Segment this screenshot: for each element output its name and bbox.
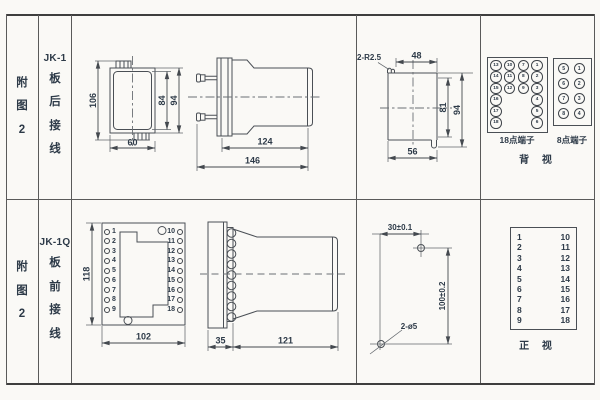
terminal-number: 17 <box>561 305 570 315</box>
label-18-point: 18点端子 <box>484 134 550 146</box>
wiring-label-char: 板 <box>49 74 61 86</box>
dim-106: 106 <box>88 93 98 108</box>
terminal-circle: 11 <box>504 71 516 83</box>
terminal-number: 7 <box>517 294 522 304</box>
drawing-rear-view: 106 84 94 60 <box>88 56 183 152</box>
terminal-item: 7 <box>104 286 126 294</box>
terminal-number: 1 <box>110 228 118 235</box>
model-cell-top: JK-1 板后接线 <box>39 15 71 199</box>
dim-121: 121 <box>278 336 293 346</box>
dim-60: 60 <box>127 138 137 148</box>
terminal-item: 11 <box>160 237 183 245</box>
terminal-number: 18 <box>165 306 177 313</box>
terminal-circle: 4 <box>574 108 585 119</box>
wiring-label-char: 板 <box>49 258 61 270</box>
terminal-dot <box>177 277 183 283</box>
terminal-number: 8 <box>517 305 522 315</box>
terminal-circle: 7 <box>518 60 530 72</box>
model-name: JK-1 <box>44 53 67 64</box>
terminal-circle: 1 <box>574 63 585 74</box>
terminal-circle: 16 <box>490 94 502 106</box>
terminal-number: 11 <box>166 238 177 245</box>
terminal-number: 1 <box>517 232 522 242</box>
terminal-item: 12 <box>160 247 183 255</box>
figure-page: 附图2 JK-1 板后接线 附图2 JK-1Q 板前接线 <box>0 0 600 400</box>
terminal-circle: 12 <box>504 83 516 95</box>
terminal-number: 10 <box>165 228 177 235</box>
terminal-number: 11 <box>561 242 570 252</box>
terminal-dot <box>177 248 183 254</box>
terminal-dot <box>177 307 183 313</box>
terminal-list-right-column: 101112131415161718 <box>561 232 570 325</box>
terminal-circle: 7 <box>558 93 569 104</box>
terminal-number: 9 <box>110 306 118 313</box>
figure-label-char: 附 <box>16 78 28 90</box>
terminal-dot <box>177 287 183 293</box>
model-cell-bottom: JK-1Q 板前接线 <box>39 200 71 383</box>
terminal-number: 8 <box>110 296 118 303</box>
terminal-circle: 3 <box>574 93 585 104</box>
wiring-label-char: 接 <box>49 305 61 317</box>
terminal-number: 15 <box>561 284 570 294</box>
terminal-item: 8 <box>104 296 126 304</box>
terminal-circle: 3 <box>531 83 543 95</box>
figure-label-char: 2 <box>19 309 25 321</box>
terminal-circle: 5 <box>558 63 569 74</box>
dim-100: 100±0.2 <box>438 281 447 310</box>
terminal-item: 2 <box>104 237 126 245</box>
terminal-number: 5 <box>110 267 118 274</box>
drawing-panel-cutout: 48 2-R2.5 81 94 56 <box>357 51 473 163</box>
hole-note: 2-ø5 <box>401 322 418 331</box>
terminal-number: 5 <box>517 274 522 284</box>
terminal-number: 12 <box>561 253 570 263</box>
dim-56: 56 <box>407 147 417 157</box>
terminal-circle: 15 <box>490 83 502 95</box>
terminal-item: 4 <box>104 257 126 265</box>
terminal-circle: 2 <box>574 78 585 89</box>
terminal-grid-8: 51627384 <box>556 61 587 121</box>
model-name: JK-1Q <box>40 237 71 248</box>
terminal-number: 18 <box>561 315 570 325</box>
wiring-label-top: 板后接线 <box>49 68 61 162</box>
terminal-number: 3 <box>110 248 118 255</box>
terminal-item: 14 <box>160 267 183 275</box>
drawing-side-view-front: 35 121 <box>200 222 346 351</box>
terminal-item: 3 <box>104 247 126 255</box>
terminal-number: 3 <box>517 253 522 263</box>
terminal-item: 16 <box>160 286 183 294</box>
terminal-list-left-column: 123456789 <box>517 232 522 325</box>
wiring-label-char: 线 <box>49 329 61 341</box>
figure-label-top: 附图2 <box>6 15 38 199</box>
grid-line-top <box>6 14 595 16</box>
wiring-label-char: 后 <box>49 97 61 109</box>
radius-note: 2-R2.5 <box>357 53 382 62</box>
terminal-number: 16 <box>165 287 177 294</box>
terminal-dot <box>177 258 183 264</box>
figure-label-char: 图 <box>16 286 28 298</box>
terminal-list-front: 123456789 101112131415161718 <box>510 227 577 330</box>
terminal-circle: 17 <box>490 106 502 118</box>
terminal-item: 18 <box>160 306 183 314</box>
terminal-number: 2 <box>110 238 118 245</box>
terminal-dot <box>177 297 183 303</box>
terminal-circle: 9 <box>518 83 530 95</box>
front-view-left-terminals: 1 2 3 4 5 6 7 8 9 <box>104 228 126 314</box>
terminal-item: 13 <box>160 257 183 265</box>
grid-line-bottom <box>6 383 595 385</box>
terminal-circle: 18 <box>490 117 502 129</box>
terminal-circle: 8 <box>558 108 569 119</box>
terminal-number: 17 <box>165 296 177 303</box>
terminal-item: 1 <box>104 228 126 236</box>
wiring-label-bottom: 板前接线 <box>49 252 61 346</box>
terminal-number: 12 <box>165 248 177 255</box>
terminal-number: 16 <box>561 294 570 304</box>
terminal-item: 10 <box>160 228 183 236</box>
terminal-number: 7 <box>110 287 118 294</box>
terminal-number: 14 <box>165 267 177 274</box>
figure-label-bottom: 附图2 <box>6 200 38 383</box>
dim-81: 81 <box>438 102 448 112</box>
grid-line-middle <box>6 199 595 200</box>
label-front-view: 正 视 <box>481 337 595 352</box>
dim-84: 84 <box>157 95 167 105</box>
terminal-circle: 1 <box>531 60 543 72</box>
terminal-item: 6 <box>104 276 126 284</box>
figure-label-char: 2 <box>19 125 25 137</box>
dim-118: 118 <box>82 267 92 282</box>
dim-35: 35 <box>215 336 225 346</box>
terminal-circle: 10 <box>504 60 516 72</box>
terminal-circle: 8 <box>518 71 530 83</box>
wiring-label-char: 接 <box>49 121 61 133</box>
terminal-item: 17 <box>160 296 183 304</box>
dim-146: 146 <box>245 156 260 166</box>
terminal-circle: 6 <box>558 78 569 89</box>
terminal-number: 6 <box>517 284 522 294</box>
terminal-number: 13 <box>561 263 570 273</box>
label-back-view: 背 视 <box>481 151 595 166</box>
terminal-number: 4 <box>110 257 118 264</box>
dim-48: 48 <box>411 51 421 61</box>
terminal-circle: 13 <box>490 60 502 72</box>
terminal-number: 4 <box>517 263 522 273</box>
terminal-item: 15 <box>160 276 183 284</box>
wiring-label-char: 线 <box>49 144 61 156</box>
terminal-circle: 5 <box>531 106 543 118</box>
dim-30: 30±0.1 <box>388 223 413 232</box>
dim-94-cutout: 94 <box>452 105 462 115</box>
terminal-grid-18: 131071141182151293164175186 <box>489 60 544 129</box>
wiring-label-char: 前 <box>49 282 61 294</box>
terminal-circle: 4 <box>531 94 543 106</box>
terminal-circle: 14 <box>490 71 502 83</box>
figure-label-char: 图 <box>16 101 28 113</box>
label-8-point: 8点端子 <box>550 134 594 146</box>
terminal-circle: 6 <box>531 117 543 129</box>
terminal-number: 6 <box>110 277 118 284</box>
terminal-number: 9 <box>517 315 522 325</box>
terminal-number: 10 <box>561 232 570 242</box>
drawing-side-view-rear: 124 146 <box>188 58 322 171</box>
terminal-circle: 2 <box>531 71 543 83</box>
terminal-item: 9 <box>104 306 126 314</box>
dim-102: 102 <box>136 332 151 342</box>
terminal-number: 15 <box>165 277 177 284</box>
figure-label-char: 附 <box>16 262 28 274</box>
terminal-item: 5 <box>104 267 126 275</box>
terminal-number: 14 <box>561 274 570 284</box>
drawing-drill-plan: 30±0.1 100±0.2 2-ø5 <box>370 223 452 354</box>
dim-124: 124 <box>257 137 272 147</box>
terminal-dot <box>177 229 183 235</box>
terminal-dot <box>177 238 183 244</box>
dim-94: 94 <box>169 95 179 105</box>
front-view-right-terminals: 10 11 12 13 14 15 16 17 18 <box>160 228 183 314</box>
terminal-number: 13 <box>165 257 177 264</box>
terminal-dot <box>177 268 183 274</box>
terminal-number: 2 <box>517 242 522 252</box>
